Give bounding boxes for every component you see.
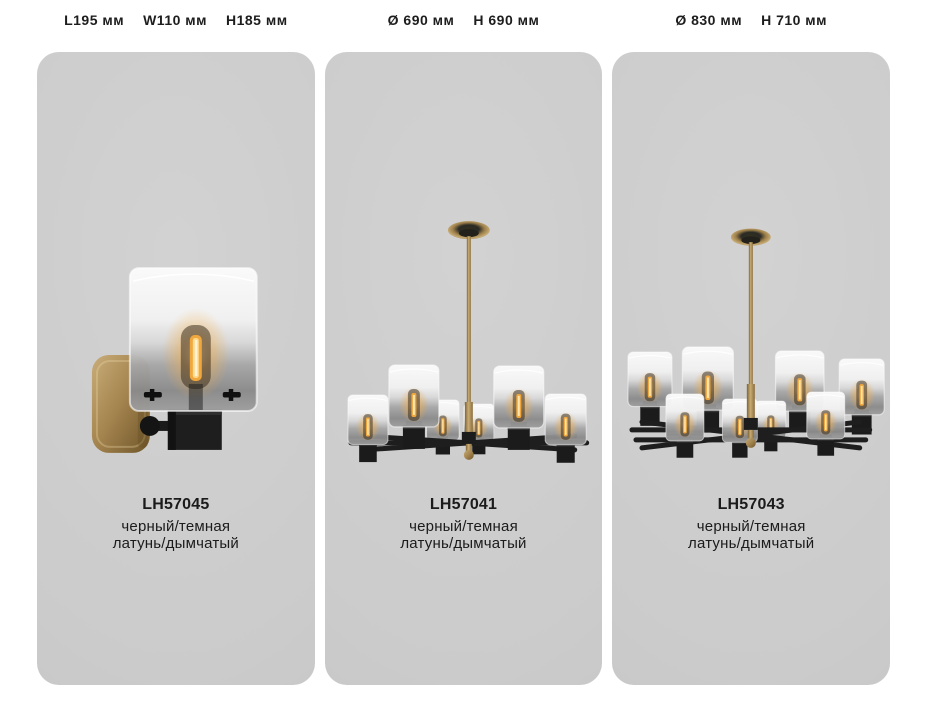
sconce-glass-shade — [130, 268, 257, 411]
product-finish: черный/темная латунь/дымчатый — [612, 519, 890, 552]
dimension-height: H 710 мм — [761, 12, 827, 28]
dimension-height: H185 мм — [226, 12, 288, 28]
hanging-rod — [749, 242, 753, 384]
product-code: LH57041 — [325, 496, 603, 514]
product-label: LH57043 черный/темная латунь/дымчатый — [612, 496, 890, 552]
wall-sconce-image — [37, 52, 315, 685]
catalog-sheet: L195 мм W110 мм H185 мм — [0, 0, 925, 720]
product-finish: черный/темная латунь/дымчатый — [325, 519, 603, 552]
product-column-lh57045: L195 мм W110 мм H185 мм — [37, 0, 315, 720]
finish-line-2: латунь/дымчатый — [113, 535, 239, 552]
product-column-lh57041: Ø 690 мм H 690 мм — [325, 0, 603, 720]
chandelier-eight-light-image — [612, 52, 890, 685]
product-label: LH57041 черный/темная латунь/дымчатый — [325, 496, 603, 552]
product-column-lh57043: Ø 830 мм H 710 мм — [612, 0, 890, 720]
dimension-diameter: Ø 830 мм — [675, 12, 742, 28]
product-label: LH57045 черный/темная латунь/дымчатый — [37, 496, 315, 552]
product-dimensions: Ø 830 мм H 710 мм — [612, 0, 890, 52]
product-finish: черный/темная латунь/дымчатый — [37, 519, 315, 552]
product-dimensions: Ø 690 мм H 690 мм — [325, 0, 603, 52]
dimension-diameter: Ø 690 мм — [388, 12, 455, 28]
dimension-height: H 690 мм — [473, 12, 539, 28]
product-dimensions: L195 мм W110 мм H185 мм — [37, 0, 315, 52]
chandelier-six-light-image — [325, 52, 603, 685]
product-card[interactable]: LH57041 черный/темная латунь/дымчатый — [325, 52, 603, 685]
finish-line-1: черный/темная — [697, 518, 806, 535]
dimension-width: W110 мм — [143, 12, 207, 28]
finish-line-2: латунь/дымчатый — [400, 535, 526, 552]
product-code: LH57045 — [37, 496, 315, 514]
sconce-socket-cube — [168, 409, 222, 450]
finish-line-2: латунь/дымчатый — [688, 535, 814, 552]
dimension-length: L195 мм — [64, 12, 124, 28]
finish-line-1: черный/темная — [121, 518, 230, 535]
product-card[interactable]: LH57045 черный/темная латунь/дымчатый — [37, 52, 315, 685]
finish-line-1: черный/темная — [409, 518, 518, 535]
hanging-rod — [467, 236, 471, 402]
product-card[interactable]: LH57043 черный/темная латунь/дымчатый — [612, 52, 890, 685]
product-code: LH57043 — [612, 496, 890, 514]
